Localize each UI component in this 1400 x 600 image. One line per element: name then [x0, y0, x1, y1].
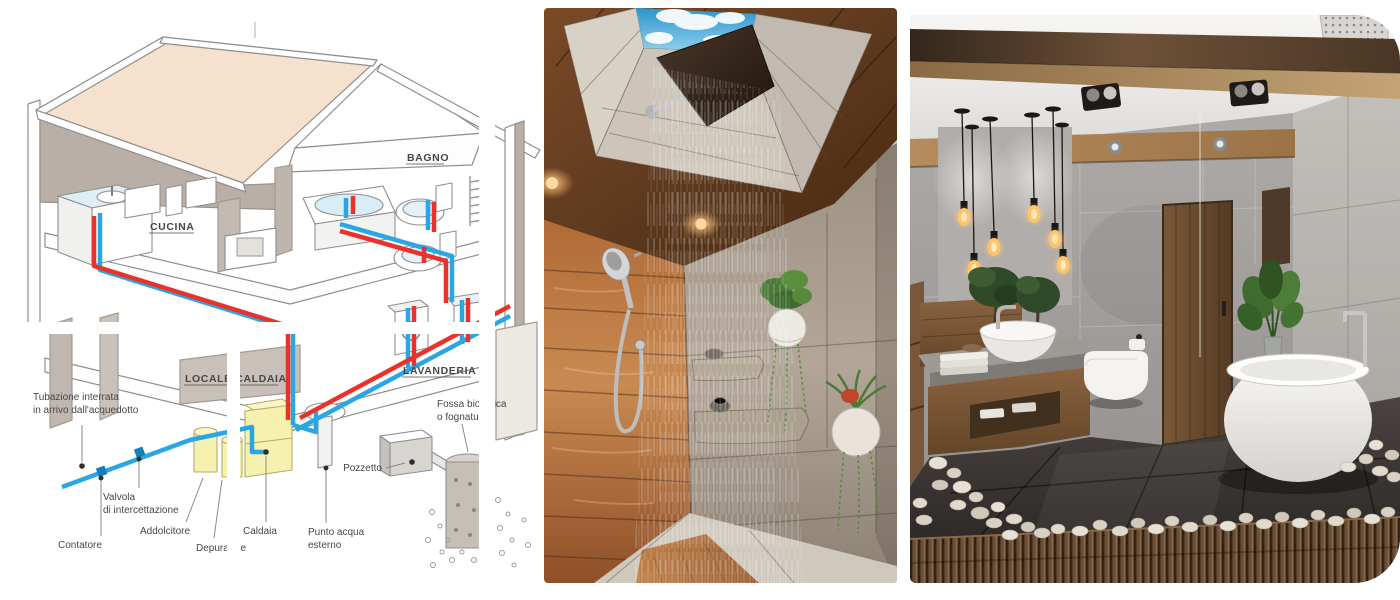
water-stream-core [656, 78, 779, 583]
wood-shower-photo [544, 8, 897, 583]
wooden-door [1163, 201, 1232, 445]
outdoor-basin-pedestal [318, 416, 332, 468]
bathroom-ideas-collage: BAGNO CUCINA LOCALE CALDAIA LAVANDERIA T… [0, 0, 1400, 600]
shelf-towel-1 [980, 408, 1005, 419]
door-handle [1222, 301, 1226, 316]
label-cucina: CUCINA [150, 221, 194, 233]
label-valvola-1: Valvola [103, 492, 135, 503]
dark-wall-niche [1262, 187, 1290, 267]
kitchen-island-inset [237, 238, 263, 256]
wall-cabinet-3 [186, 177, 216, 208]
bathtub-inner [315, 194, 383, 216]
far-right-wall-shade [876, 118, 897, 583]
label-valvola-2: di intercettazione [103, 505, 179, 516]
label-caldaia: Caldaia [243, 526, 277, 537]
modern-bathroom-photo [910, 15, 1400, 583]
spotlight-fixture-2 [1229, 79, 1269, 106]
kitchen-counter-side [58, 196, 92, 265]
bathtub-inner [1240, 359, 1356, 381]
tp-roll [1129, 339, 1145, 350]
label-lavanderia: LAVANDERIA [403, 365, 476, 377]
pit-body [390, 437, 432, 476]
bidet-cistern [436, 183, 452, 212]
label-tubazione-2: in arrivo dall'acquedotto [33, 405, 139, 416]
spotlight-fixture-1 [1081, 83, 1122, 111]
planter-pot-lower [832, 408, 880, 456]
label-contatore: Contatore [58, 540, 102, 551]
label-punto-acqua-1: Punto acqua [308, 527, 365, 538]
left-wall-post [28, 100, 40, 328]
downlight-mid [696, 219, 707, 230]
label-punto-acqua-2: esterno [308, 540, 342, 551]
shelf-towel-2 [1012, 402, 1037, 413]
downlight-left [546, 177, 558, 189]
pipe-nodes [96, 447, 146, 478]
laundry-wall-sliver [496, 322, 537, 440]
plumbing-diagram-panel: BAGNO CUCINA LOCALE CALDAIA LAVANDERIA T… [0, 0, 543, 600]
label-pozzetto: Pozzetto [343, 463, 382, 474]
label-tubazione-1: Tubazione interrata [33, 392, 119, 403]
planter-flower [841, 389, 859, 403]
wall-cabinet-2 [166, 185, 182, 216]
soap-dish [962, 344, 982, 352]
label-addolcitore: Addolcitore [140, 526, 190, 537]
wall-cabinet-1 [125, 184, 160, 218]
bath-partition [275, 165, 292, 256]
label-bagno: BAGNO [407, 152, 449, 164]
label-fossa-1: Fossa biologica [437, 399, 507, 410]
